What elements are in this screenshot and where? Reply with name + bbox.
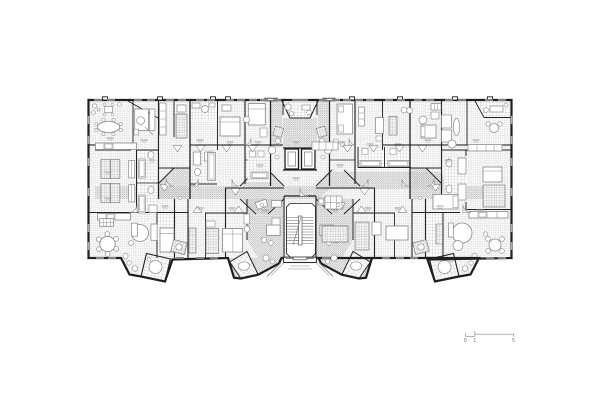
svg-text:0: 0 <box>464 338 467 344</box>
svg-text:5: 5 <box>512 338 515 344</box>
svg-text:1: 1 <box>473 338 476 344</box>
